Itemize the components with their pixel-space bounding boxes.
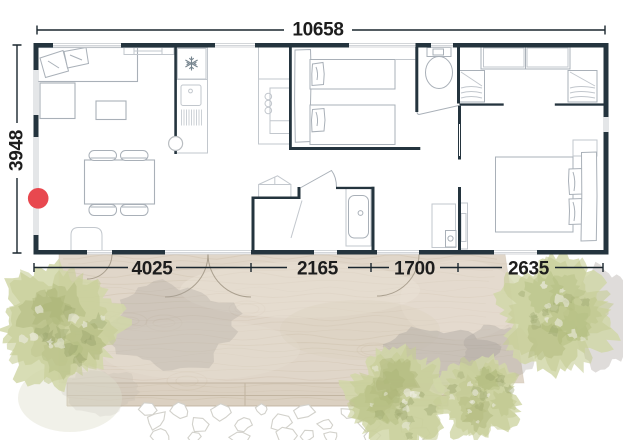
svg-text:3948: 3948 <box>7 130 28 171</box>
svg-text:2165: 2165 <box>297 259 339 280</box>
svg-text:2635: 2635 <box>508 259 550 280</box>
svg-text:4025: 4025 <box>131 259 173 280</box>
svg-text:10658: 10658 <box>292 20 343 41</box>
svg-text:1700: 1700 <box>394 259 435 280</box>
